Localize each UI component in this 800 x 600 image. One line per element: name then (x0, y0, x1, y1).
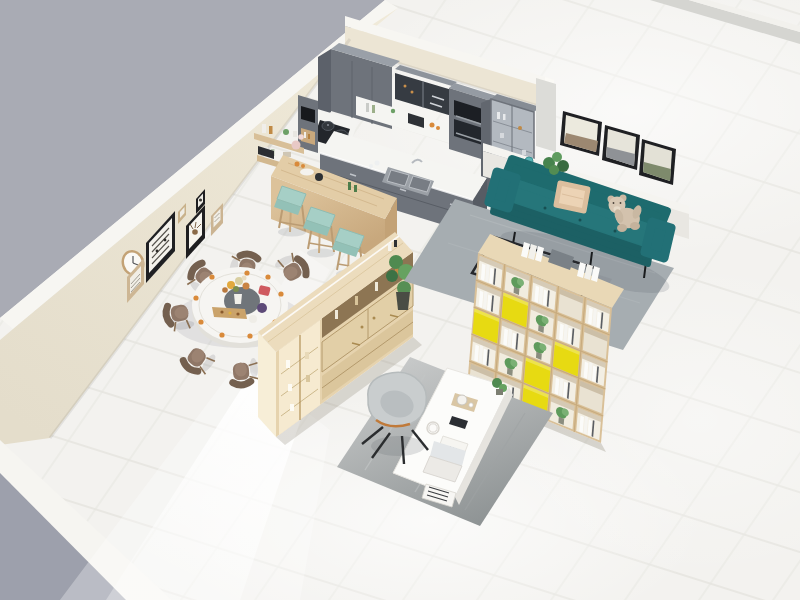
apartment-render (0, 0, 800, 600)
coffee-cup (429, 424, 437, 432)
wall-return-panel (536, 78, 556, 152)
tray-dome (315, 173, 323, 181)
isometric-scene (0, 0, 800, 600)
purple-bowl (257, 303, 267, 313)
chair-shadow (371, 436, 425, 456)
sofa-arm-right (645, 222, 671, 258)
plant-pot (396, 292, 410, 310)
pink-plate (292, 141, 301, 150)
left-tall-unit (298, 95, 318, 153)
serving-dish (300, 169, 314, 176)
kettle (457, 395, 467, 405)
sofa-arm-left (489, 172, 516, 208)
throw-pillow (556, 183, 588, 211)
vase (234, 294, 242, 304)
